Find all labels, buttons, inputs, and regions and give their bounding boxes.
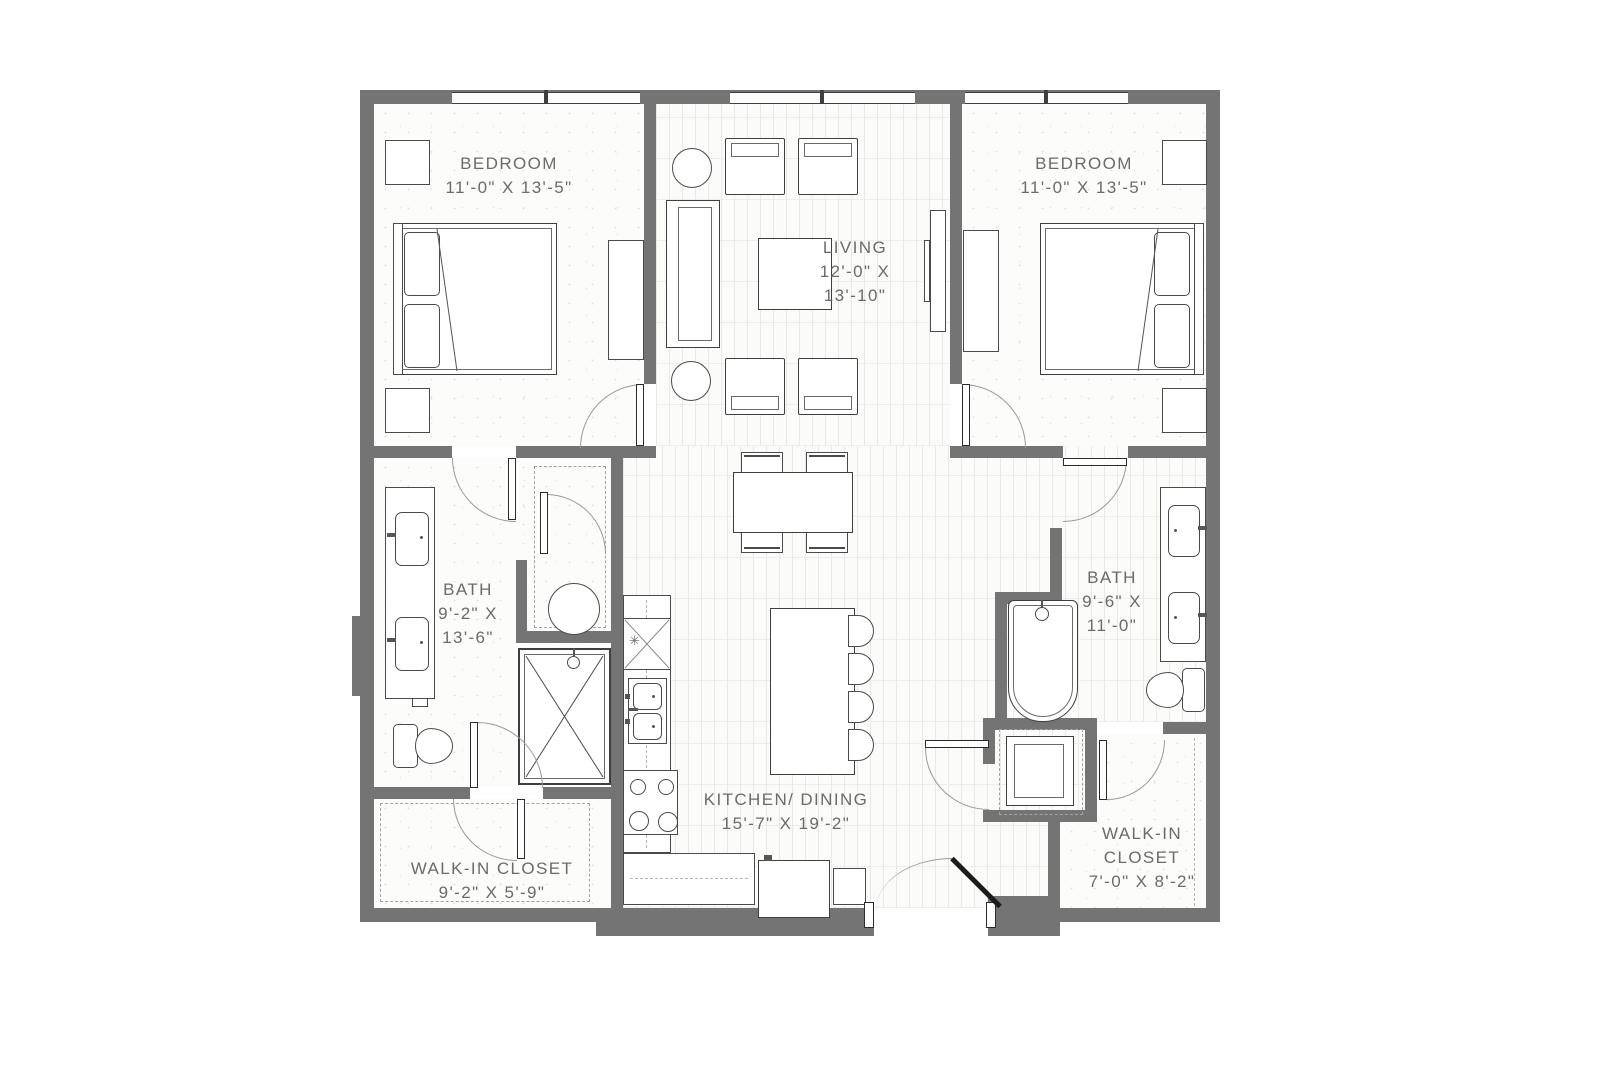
side-table bbox=[671, 361, 711, 401]
bed-fold-line bbox=[430, 225, 462, 375]
window-mullion bbox=[544, 90, 548, 104]
room-dims: 7'-0" X 8'-2" bbox=[1062, 870, 1222, 894]
drain-dot bbox=[652, 695, 655, 698]
refrigerator-handle bbox=[764, 855, 772, 861]
window-mullion bbox=[1044, 90, 1048, 104]
faucet-spout bbox=[628, 708, 638, 711]
kitchen-island bbox=[770, 608, 855, 775]
room-name: WALK-IN CLOSET bbox=[377, 857, 607, 881]
wall-tub-alcove-west bbox=[995, 592, 1007, 727]
dining-chair-back bbox=[744, 547, 780, 549]
room-name: KITCHEN/ DINING bbox=[666, 788, 906, 812]
room-label-bedroom-right: BEDROOM 11'-0" X 13'-5" bbox=[969, 152, 1199, 200]
tv-screen bbox=[924, 240, 930, 302]
armchair-back bbox=[804, 396, 852, 410]
wall-bath-closet-right bbox=[1163, 722, 1206, 734]
door-leaf bbox=[470, 722, 478, 788]
room-label-kitchen-dining: KITCHEN/ DINING 15'-7" X 19'-2" bbox=[666, 788, 906, 836]
dining-chair bbox=[806, 531, 848, 553]
wall-bath-closet-left-a bbox=[374, 787, 470, 799]
room-label-bath-left: BATH 9'-2" X 13'-6" bbox=[408, 578, 528, 650]
dining-chair-back bbox=[809, 547, 845, 549]
wall-bath-closet-left-b bbox=[543, 787, 611, 799]
dining-chair-back bbox=[809, 455, 845, 457]
nightstand bbox=[385, 388, 430, 433]
wall-laundry-right-east bbox=[1085, 718, 1097, 822]
burner bbox=[629, 811, 649, 831]
counter-centerline bbox=[630, 878, 748, 879]
counter-symbol: ✳ bbox=[629, 634, 640, 647]
dining-chair bbox=[741, 531, 783, 553]
bed-headboard bbox=[1194, 223, 1204, 375]
wall-bedroom-left-east bbox=[644, 104, 656, 384]
vanity-sink bbox=[1168, 505, 1200, 557]
faucet bbox=[625, 719, 630, 724]
wall-bedroom-right-west bbox=[950, 104, 962, 384]
toilet-bowl bbox=[1146, 672, 1184, 708]
vanity-sink bbox=[1168, 592, 1200, 644]
wall-bedroom-right-south-b bbox=[1128, 446, 1206, 458]
floor-plan: ✳ bbox=[0, 0, 1600, 1066]
window-mullion bbox=[820, 90, 824, 104]
room-name: BEDROOM bbox=[394, 152, 624, 176]
room-name: WALK-IN bbox=[1062, 822, 1222, 846]
entry-jamb bbox=[986, 902, 996, 928]
room-dims: 11'-0" X 13'-5" bbox=[969, 176, 1199, 200]
bed-fold-line bbox=[1132, 225, 1164, 375]
room-name: BATH bbox=[1052, 566, 1172, 590]
wall-right bbox=[1206, 90, 1220, 922]
room-dims: 9'-2" X bbox=[408, 602, 528, 626]
door-leaf bbox=[636, 384, 644, 446]
dresser bbox=[608, 240, 644, 360]
armchair-back bbox=[731, 396, 779, 410]
wall-left bbox=[360, 90, 374, 922]
door-leaf bbox=[1063, 458, 1127, 466]
bed-headboard bbox=[393, 223, 403, 375]
door-leaf bbox=[962, 384, 970, 446]
dining-table bbox=[733, 472, 853, 533]
shower-head-stem bbox=[573, 648, 575, 656]
dresser bbox=[963, 230, 999, 352]
wall-bottom-kitchen-step bbox=[596, 922, 874, 936]
door-leaf bbox=[508, 458, 516, 520]
faucet bbox=[1198, 526, 1207, 530]
room-dims: 9'-2" X 5'-9" bbox=[377, 881, 607, 905]
room-name: BATH bbox=[408, 578, 528, 602]
burner bbox=[630, 779, 646, 795]
vanity-foot bbox=[412, 698, 428, 707]
door-leaf bbox=[1099, 740, 1107, 800]
room-dims: 13'-6" bbox=[408, 626, 528, 650]
armchair-back bbox=[804, 143, 852, 157]
room-dims: 11'-0" X 13'-5" bbox=[394, 176, 624, 200]
faucet bbox=[387, 638, 396, 642]
room-label-walk-in-closet-left: WALK-IN CLOSET 9'-2" X 5'-9" bbox=[377, 857, 607, 905]
faucet bbox=[387, 533, 396, 537]
room-label-walk-in-closet-right: WALK-IN CLOSET 7'-0" X 8'-2" bbox=[1062, 822, 1222, 894]
vanity-sink bbox=[395, 512, 429, 566]
sofa-cushion-line bbox=[678, 207, 712, 341]
dining-chair-back bbox=[744, 455, 780, 457]
cabinet bbox=[833, 868, 866, 905]
room-name: LIVING bbox=[795, 236, 915, 260]
room-label-bedroom-left: BEDROOM 11'-0" X 13'-5" bbox=[394, 152, 624, 200]
tv-console bbox=[930, 210, 946, 332]
door-leaf bbox=[517, 799, 525, 859]
door-leaf bbox=[925, 740, 989, 748]
wall-left-pilaster bbox=[352, 616, 362, 696]
wall-bedroom-left-south-a bbox=[374, 446, 452, 458]
shower-head bbox=[567, 656, 580, 669]
room-name: BEDROOM bbox=[969, 152, 1199, 176]
faucet bbox=[1198, 613, 1207, 617]
room-name: CLOSET bbox=[1062, 846, 1222, 870]
drain-dot bbox=[652, 725, 655, 728]
side-table bbox=[672, 148, 712, 188]
drain-dot bbox=[1174, 616, 1177, 619]
armchair-back bbox=[731, 143, 779, 157]
tub-faucet bbox=[1035, 607, 1049, 621]
toilet-tank bbox=[1182, 668, 1205, 712]
room-dims: 12'-0" X bbox=[795, 260, 915, 284]
sink-basin bbox=[633, 713, 662, 740]
drain-dot bbox=[420, 536, 423, 539]
door-leaf bbox=[540, 492, 548, 554]
entry-jamb bbox=[864, 902, 874, 928]
nightstand bbox=[1162, 388, 1207, 433]
refrigerator bbox=[758, 860, 830, 918]
drain-dot bbox=[1174, 529, 1177, 532]
room-dims: 11'-0" bbox=[1052, 614, 1172, 638]
room-label-bath-right: BATH 9'-6" X 11'-0" bbox=[1052, 566, 1172, 638]
room-dims: 13'-10" bbox=[795, 284, 915, 308]
sink-basin bbox=[633, 683, 662, 710]
kitchen-counter-south bbox=[623, 853, 755, 905]
wall-closet-right-stub bbox=[1048, 822, 1060, 896]
room-label-living: LIVING 12'-0" X 13'-10" bbox=[795, 236, 915, 308]
washer-inner-line bbox=[1014, 744, 1064, 798]
room-dims: 15'-7" X 19'-2" bbox=[666, 812, 906, 836]
room-dims: 9'-6" X bbox=[1052, 590, 1172, 614]
washer bbox=[548, 583, 600, 635]
wall-kitchen-west bbox=[611, 458, 623, 908]
faucet bbox=[625, 694, 630, 699]
